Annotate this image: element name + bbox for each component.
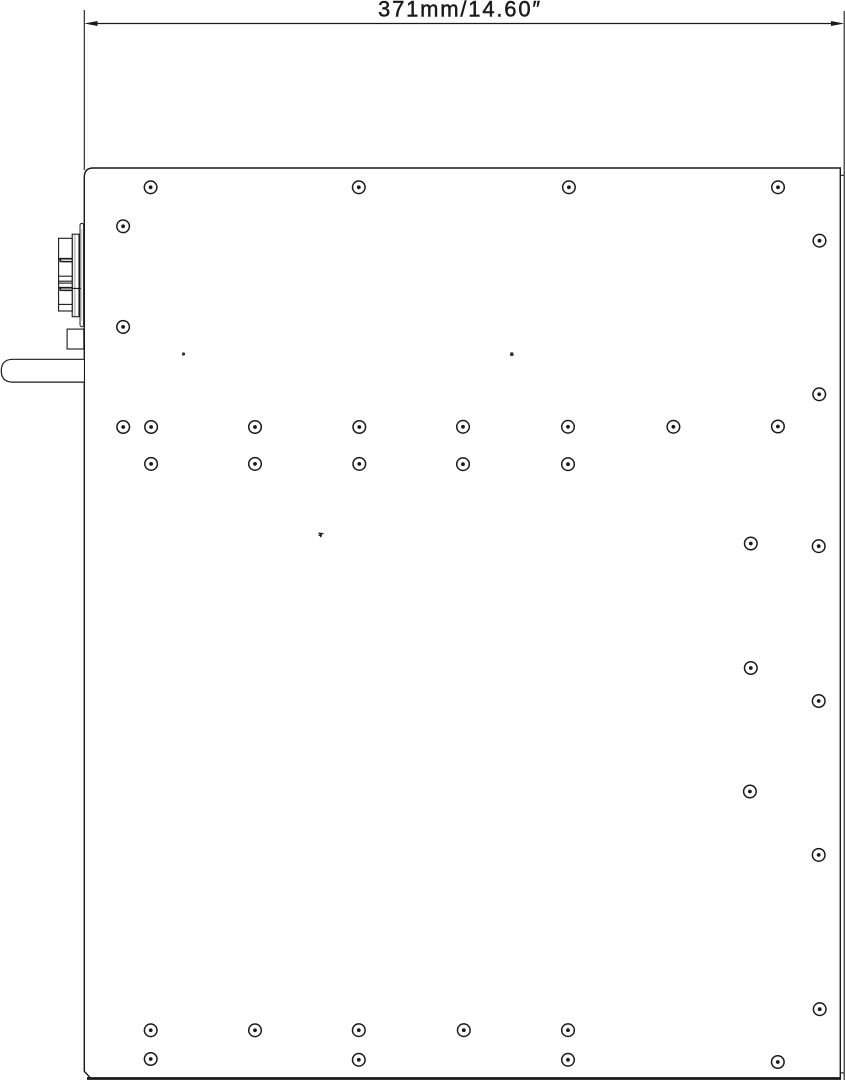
svg-text:371mm/14.60″: 371mm/14.60″ (378, 0, 542, 22)
